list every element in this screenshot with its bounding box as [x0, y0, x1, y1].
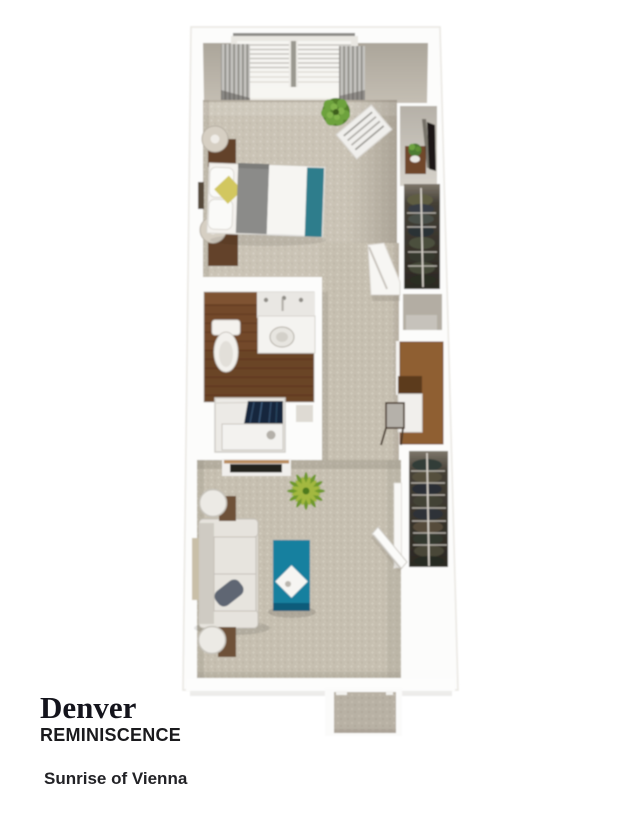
svg-text:Sunrise of Vienna: Sunrise of Vienna — [44, 769, 188, 788]
svg-text:REMINISCENCE: REMINISCENCE — [40, 725, 181, 745]
svg-text:Denver: Denver — [40, 690, 137, 725]
